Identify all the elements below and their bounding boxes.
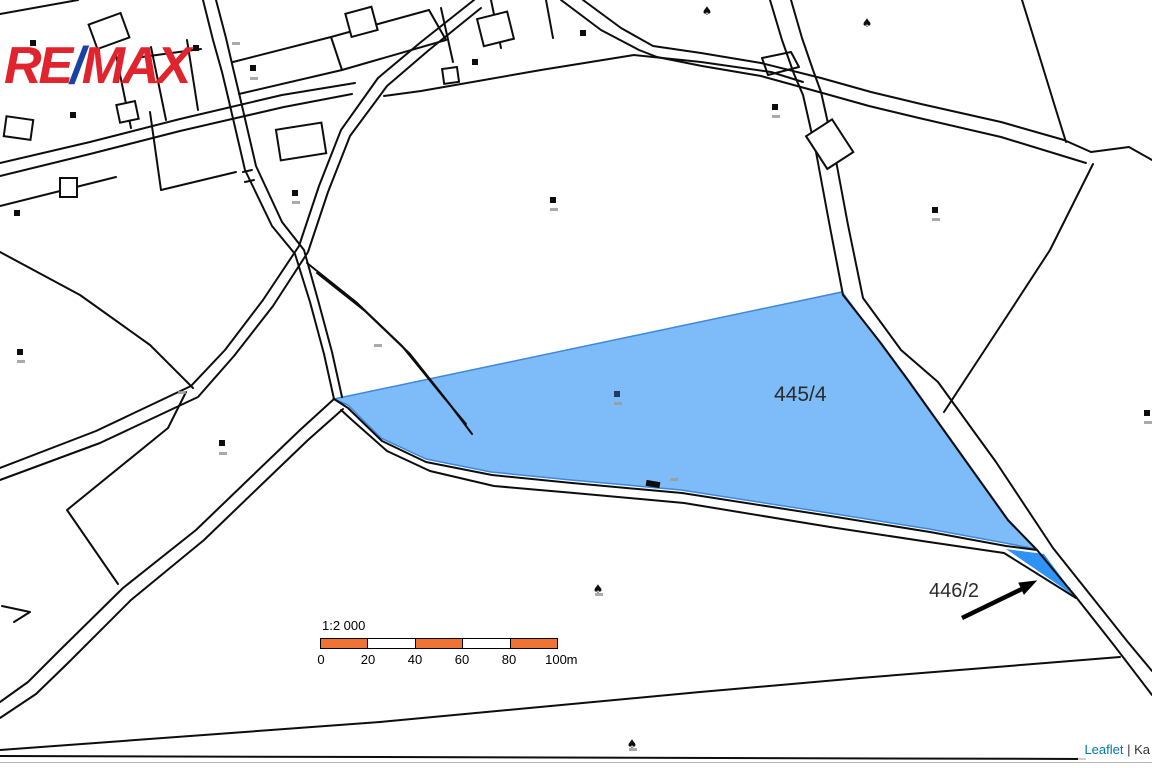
point-symbol-square [219,440,225,446]
road-line [203,0,228,97]
scale-segments [320,638,558,649]
scale-segment [510,639,557,648]
logo-max: MAX [82,37,189,95]
micro-parcel-label [250,77,258,80]
micro-parcel-label [17,360,25,363]
scale-tick: 40 [408,652,422,667]
scale-tick: 20 [361,652,375,667]
point-symbol-square [250,65,256,71]
point-symbol-square [193,45,199,51]
micro-parcel-label [292,201,300,204]
boundary-line [0,657,1120,750]
scale-segment [321,639,367,648]
scale-unit: m [567,652,578,667]
parcel-label-445-4: 445/4 [774,383,827,407]
parcel-445-4[interactable] [334,292,1036,549]
micro-parcel-label [932,218,940,221]
logo-re: RE [4,37,70,95]
attribution-separator: | [1123,742,1134,757]
building [442,67,459,84]
building [60,178,77,197]
micro-parcel-label [219,452,227,455]
building [276,123,326,161]
micro-parcel-label [1144,421,1152,424]
point-symbol-square [772,104,778,110]
boundary-line [0,252,193,388]
attribution-bar: Leaflet | Ka [1078,740,1152,760]
point-symbol-square [550,197,556,203]
bridge-tick [245,180,254,182]
micro-parcel-label [670,478,678,481]
road-line [1022,0,1066,142]
point-symbol-square-dark [614,391,620,397]
micro-parcel-label [550,208,558,211]
building [116,101,138,123]
micro-parcel-label [772,115,780,118]
scale-segment [367,639,414,648]
scale-segment [462,639,509,648]
point-symbol-square [472,59,478,65]
scale-tick: 60 [455,652,469,667]
scale-tick: 100 [545,652,567,667]
map-screenshot: ♠♠♠♠ RE/MAX 445/4 446/2 1:2 000 0 20 40 … [0,0,1152,768]
point-symbol-square [1144,410,1150,416]
boundary-line [331,37,342,70]
point-symbol-square [70,112,76,118]
micro-parcel-label [178,391,186,394]
point-symbol-square [932,207,938,213]
micro-parcel-label [629,748,637,751]
highlighted-parcels [334,292,1076,597]
point-symbol-square [292,190,298,196]
scale-bar: 1:2 000 0 20 40 60 80 100 m [320,618,620,668]
road-line [216,0,239,93]
point-symbol-square [17,349,23,355]
boundary-line [2,606,30,622]
micro-parcel-label [595,593,603,596]
scale-ticks: 0 20 40 60 80 100 m [320,652,620,668]
tree-symbol: ♠ [862,16,873,30]
boundary-line [0,177,116,206]
micro-parcel-label [232,42,240,45]
point-symbol-square [14,210,20,216]
tree-symbol: ♠ [702,4,713,18]
leaflet-link[interactable]: Leaflet [1084,742,1123,757]
scale-segment [415,639,462,648]
building [345,7,377,37]
road-line [0,399,334,702]
boundary-line [546,0,553,38]
micro-parcel-label [614,402,622,405]
logo-slash: / [70,37,81,95]
scale-tick: 80 [502,652,516,667]
micro-parcel-label [374,344,382,347]
scale-tick: 0 [317,652,324,667]
point-symbol-square [580,30,586,36]
boundary-line [0,0,78,14]
bottom-frame [0,762,1152,768]
road-line [944,164,1093,412]
road-line [1091,147,1152,160]
parcel-label-446-2: 446/2 [929,580,979,603]
building [4,116,34,140]
building [477,12,514,47]
boundary-line [0,756,1085,759]
remax-logo: RE/MAX [4,40,188,92]
boundary-line [161,172,236,190]
building [806,119,853,169]
boundary-line [67,392,186,584]
road-line [0,409,343,718]
attribution-text: Ka [1134,742,1150,757]
scale-ratio: 1:2 000 [322,618,620,633]
